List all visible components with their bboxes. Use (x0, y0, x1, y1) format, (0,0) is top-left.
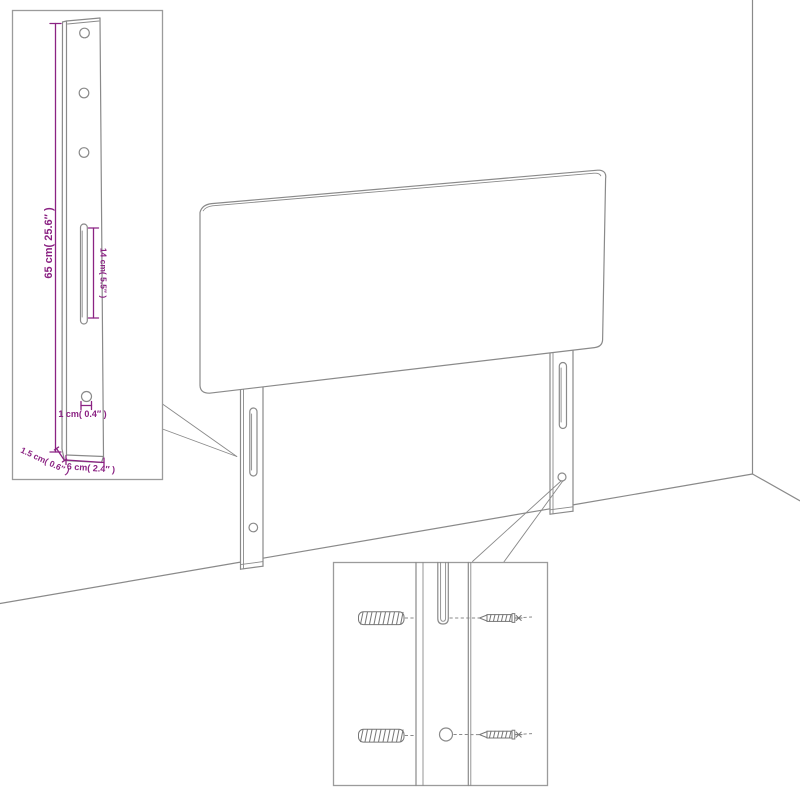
panel-outline (200, 170, 606, 393)
callout-lines-bottom-inset (473, 481, 563, 563)
strip-hole (440, 728, 453, 741)
dimension-depth: 1.5 cm( 0.6″ ) (19, 445, 71, 476)
headboard-left-leg (241, 387, 264, 569)
callout-lines-left-inset (163, 404, 237, 457)
leg-closeup-strip (416, 563, 471, 786)
right-leg-slot (559, 363, 566, 429)
screw-icon-lower (454, 730, 533, 739)
strip-slot (438, 563, 449, 625)
plug-thread-hatching (361, 612, 404, 624)
plug-thread-hatching (361, 730, 404, 742)
screw-tip (480, 615, 488, 621)
post-hole-middle (79, 88, 89, 98)
slot-length-label: 14 cm( 5.5″ ) (99, 248, 109, 299)
right-leg-hole (558, 473, 566, 481)
leg-dimension-inset: 65 cm( 25.6″ ) 14 cm( 5.5″ ) 1 cm( 0.4″ … (13, 11, 163, 480)
post-bottom-right-corner (102, 457, 104, 463)
headboard-diagram: 65 cm( 25.6″ ) 14 cm( 5.5″ ) 1 cm( 0.4″ … (0, 0, 800, 800)
floor-line-right (573, 474, 753, 505)
dimension-slot-length: 14 cm( 5.5″ ) (89, 228, 109, 318)
screw-head-cross (515, 616, 522, 621)
post-small-hole (82, 392, 92, 402)
screw-thread-lines (489, 731, 511, 738)
screw-detail-inset (334, 563, 548, 786)
callout-line-upper (163, 404, 237, 457)
post-bottom-front-edge (67, 455, 104, 457)
callout-line-lower (163, 429, 237, 457)
post-side-edge (62, 22, 63, 449)
diagram-canvas: 65 cm( 25.6″ ) 14 cm( 5.5″ ) 1 cm( 0.4″ … (0, 0, 800, 800)
width-label: 6 cm( 2.4″ ) (67, 461, 116, 474)
dimension-width: 6 cm( 2.4″ ) (66, 456, 115, 475)
post-right-edge (100, 18, 104, 457)
floor-line-left (0, 562, 241, 603)
screw-head-cross (515, 732, 522, 737)
wall-plug-icon-upper (359, 612, 416, 625)
strip-slot-inner-line (441, 563, 446, 622)
floor-line-corner-right (753, 474, 800, 501)
screw-trailing-dashes (524, 734, 533, 735)
post-slot (81, 224, 88, 324)
dimension-hole-diameter: 1 cm( 0.4″ ) (58, 402, 106, 420)
headboard-right-leg (550, 350, 573, 514)
leg-post-drawing (62, 18, 104, 463)
screw-trailing-dashes (524, 617, 533, 618)
callout-line-upper (473, 481, 562, 562)
height-label: 65 cm( 25.6″ ) (43, 207, 55, 279)
post-hole-top (80, 28, 90, 38)
post-hole-lower (79, 148, 89, 158)
dimension-height: 65 cm( 25.6″ ) (43, 24, 61, 453)
callout-line-lower (504, 481, 563, 563)
left-leg-slot (250, 408, 257, 476)
screw-tip (480, 732, 488, 738)
floor-line-middle (263, 509, 550, 558)
wall-plug-icon-lower (359, 729, 416, 742)
hole-diameter-label: 1 cm( 0.4″ ) (58, 409, 106, 419)
screw-icon-upper (450, 614, 533, 623)
screw-thread-lines (489, 615, 511, 622)
headboard-panel (200, 170, 606, 393)
post-top-inner-line (68, 21, 100, 24)
left-leg-hole (249, 523, 258, 532)
